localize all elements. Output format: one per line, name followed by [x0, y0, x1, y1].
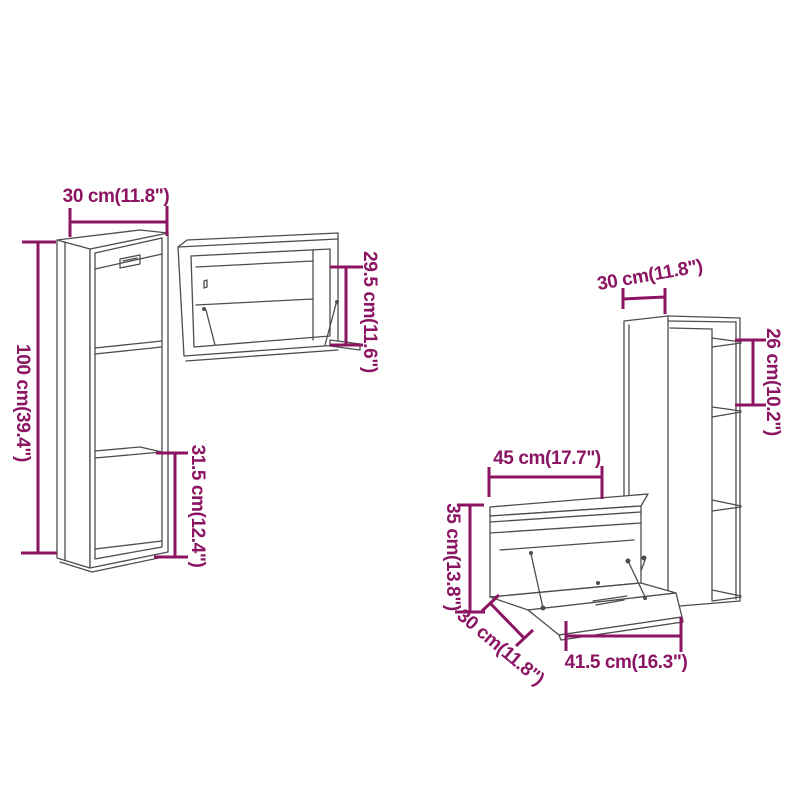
- bottom-cabinet-height-label: 35 cm(13.8"): [441, 503, 463, 611]
- bottom-cabinet-width-dimension: [489, 466, 602, 499]
- left-cabinet-drawing: [57, 230, 168, 572]
- cabinet-line-art: [0, 0, 800, 800]
- top-cabinet-drawing: [178, 233, 360, 361]
- left-cabinet-width-label: 30 cm(11.8"): [63, 186, 170, 208]
- product-dimension-diagram: 30 cm(11.8") 100 cm(39.4") 31.5 cm(12.4"…: [0, 0, 800, 800]
- bottom-cabinet-width-label: 45 cm(17.7"): [493, 448, 601, 470]
- left-cabinet-compartment-label: 31.5 cm(12.4"): [186, 445, 208, 568]
- bottom-cabinet-door-width-label: 41.5 cm(16.3"): [565, 652, 688, 674]
- right-cabinet-width-dimension: [623, 288, 665, 314]
- top-cabinet-height-label: 29.5 cm(11.6"): [358, 251, 380, 373]
- left-cabinet-height-label: 100 cm(39.4"): [11, 344, 33, 462]
- right-cabinet-compartment-label: 26 cm(10.2"): [761, 328, 783, 436]
